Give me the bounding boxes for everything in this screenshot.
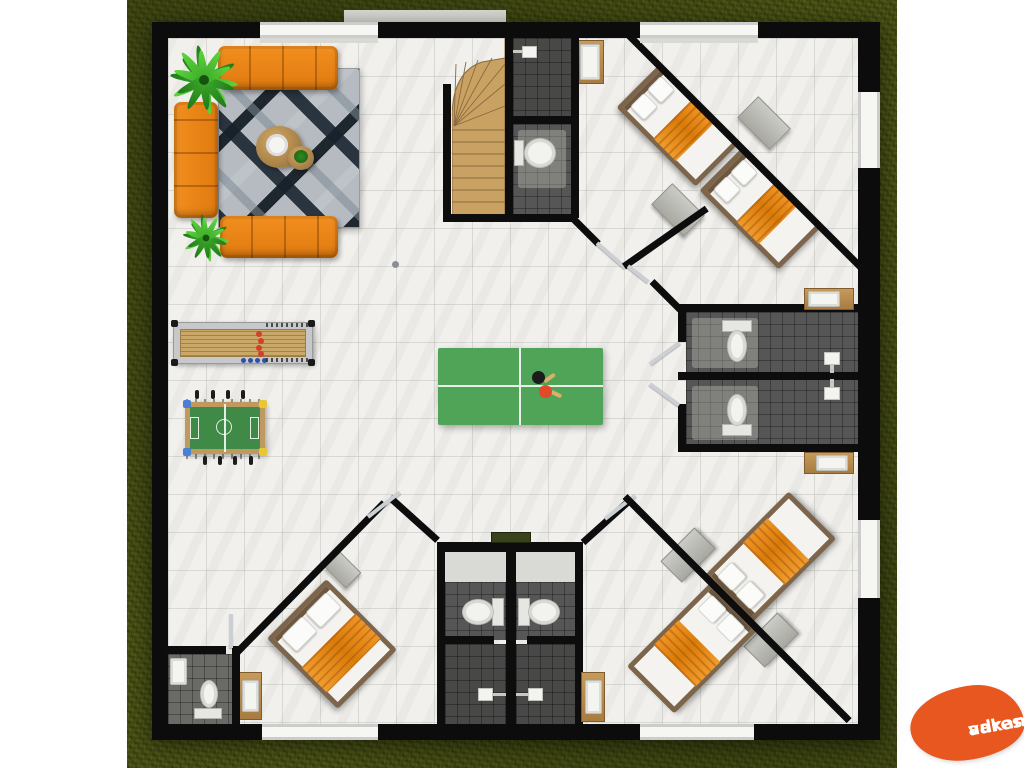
- window: [858, 92, 880, 168]
- sofa-bottom: [220, 216, 338, 258]
- score-markings: [266, 358, 308, 362]
- sink-icon: [170, 658, 187, 685]
- shower-head-icon: [528, 688, 543, 701]
- puck-red: [258, 338, 264, 344]
- floorplan-image: vakantie adressen: [0, 0, 1024, 768]
- shower-room-bottom-left: [445, 644, 506, 724]
- shuffleboard-lane: [180, 329, 306, 357]
- shower-room-bottom-right: [516, 644, 575, 724]
- foosball-goal-box: [190, 417, 199, 439]
- corner-cap-blue: [183, 400, 191, 408]
- rod-handle: [218, 456, 222, 465]
- brand-logo: vakantie adressen: [906, 680, 1024, 766]
- puck-blue: [248, 358, 253, 363]
- sofa-left: [174, 102, 218, 218]
- wall-segment: [164, 646, 226, 654]
- window-sill: [260, 38, 378, 43]
- shower-arm: [493, 693, 506, 696]
- shower-head-icon: [478, 688, 493, 701]
- corner-cap-yellow: [259, 448, 267, 456]
- rod-handle: [249, 456, 253, 465]
- paddle-black: [532, 371, 545, 384]
- plant-icon: [166, 42, 242, 118]
- wall-segment: [505, 116, 579, 124]
- shower-arm: [516, 693, 529, 696]
- wall-segment: [505, 38, 513, 218]
- foosball-center-circle: [216, 419, 232, 435]
- rod-handle: [203, 456, 207, 465]
- wall-segment: [571, 38, 579, 218]
- doormat: [491, 532, 531, 543]
- plate: [266, 134, 288, 156]
- ping-pong-center-line: [438, 385, 603, 387]
- foosball-goal-box: [250, 417, 259, 439]
- puck-red: [256, 331, 262, 337]
- wall-segment: [678, 444, 858, 452]
- rod-handle: [211, 390, 215, 399]
- shower-head-icon: [824, 352, 840, 365]
- sink-icon: [808, 291, 840, 307]
- paddle-red: [539, 385, 552, 398]
- shower-arm: [830, 365, 834, 373]
- table-foot: [308, 359, 315, 366]
- shower-head-icon: [522, 46, 537, 58]
- wall-segment: [437, 552, 445, 724]
- corner-cap-blue: [183, 448, 191, 456]
- puck-blue: [255, 358, 260, 363]
- sink-icon: [242, 680, 259, 712]
- rod-handle: [195, 390, 199, 399]
- puck-red: [258, 351, 264, 357]
- exterior-step: [344, 10, 506, 22]
- table-plant-icon: [294, 150, 308, 163]
- floor-dot: [392, 261, 399, 268]
- window: [858, 520, 880, 598]
- window: [640, 724, 754, 740]
- shower-arm: [830, 379, 834, 387]
- wall-segment: [506, 552, 516, 724]
- wall-segment: [678, 404, 686, 452]
- wall-segment: [443, 84, 451, 222]
- rod-handle: [226, 390, 230, 399]
- window: [640, 22, 758, 38]
- table-foot: [171, 359, 178, 366]
- sink-icon: [816, 455, 848, 471]
- sink-icon: [580, 44, 600, 80]
- wall-segment: [678, 304, 686, 342]
- staircase: [452, 38, 505, 215]
- score-markings: [266, 323, 308, 327]
- window: [260, 22, 378, 38]
- door-leaf: [229, 614, 233, 648]
- table-foot: [171, 320, 178, 327]
- plant-icon: [178, 212, 234, 264]
- wall-segment: [437, 542, 583, 552]
- rod-handle: [241, 390, 245, 399]
- corner-cap-yellow: [259, 400, 267, 408]
- window: [262, 724, 378, 740]
- wall-segment: [527, 636, 575, 644]
- table-foot: [308, 320, 315, 327]
- sink-icon: [585, 680, 602, 714]
- puck-blue: [241, 358, 246, 363]
- window-sill: [640, 38, 758, 43]
- logo-text-line2: adressen: [967, 708, 1024, 739]
- rod-handle: [233, 456, 237, 465]
- wall-segment: [445, 636, 494, 644]
- wall-segment: [232, 646, 240, 724]
- shower-head-icon: [824, 387, 840, 400]
